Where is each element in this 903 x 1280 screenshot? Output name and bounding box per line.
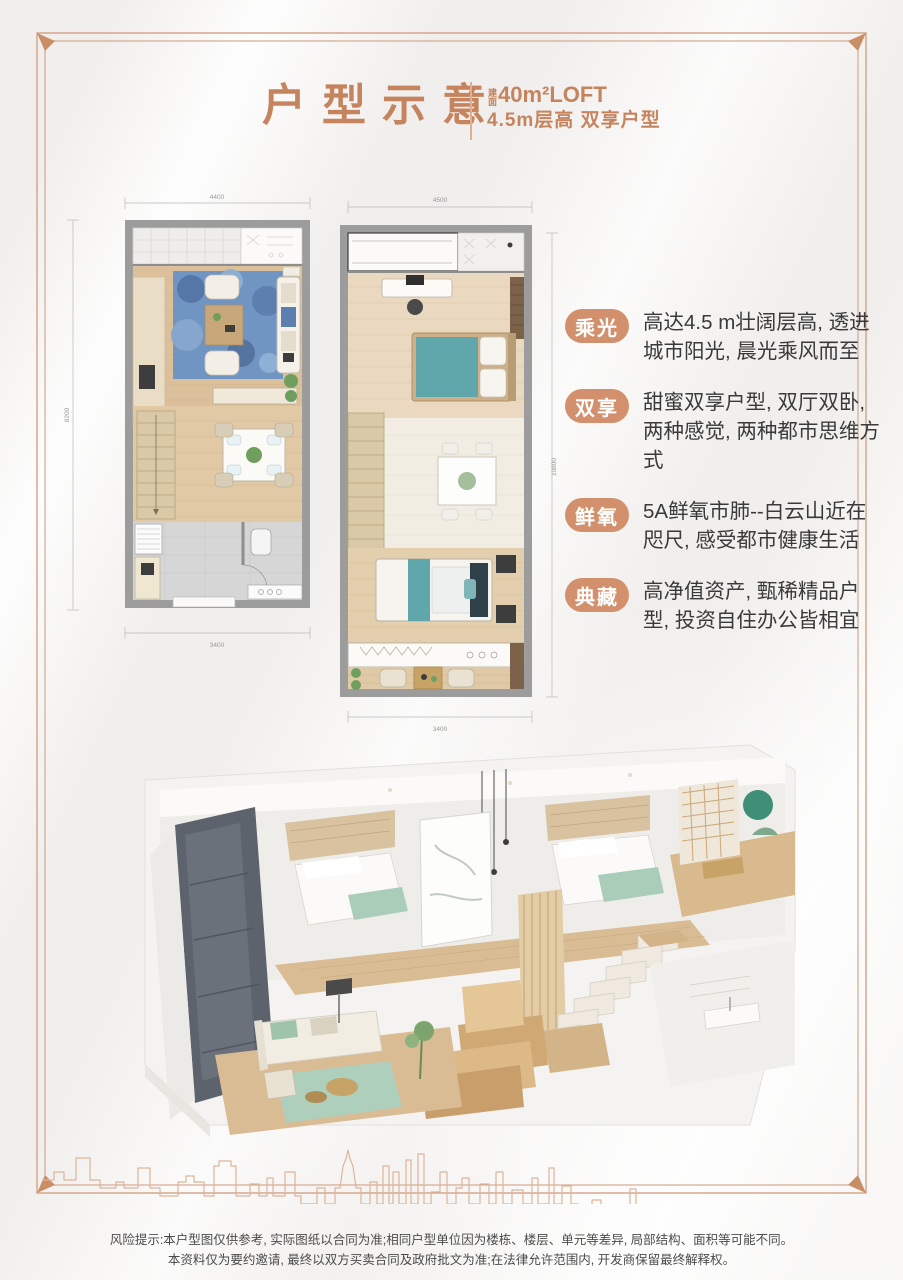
upper-bedroom-2 bbox=[545, 795, 664, 905]
feature-item: 乘光 高达4.5 m壮阔层高, 透进城市阳光, 晨光乘风而至 bbox=[565, 308, 885, 366]
entry-door bbox=[173, 597, 235, 607]
bed bbox=[412, 333, 516, 401]
dining-chair bbox=[215, 473, 233, 487]
subtitle: 建面40m²LOFT 4.5m层高 双享户型 bbox=[487, 82, 661, 134]
feature-badge: 双享 bbox=[565, 389, 629, 423]
bedroom-2 bbox=[348, 548, 524, 643]
tea-table bbox=[414, 667, 442, 689]
dim-right-label: 10800 bbox=[551, 458, 558, 476]
dim-left-label: 8200 bbox=[64, 407, 71, 422]
fan-decor bbox=[743, 790, 773, 820]
armchair bbox=[380, 669, 406, 687]
plant bbox=[351, 668, 361, 678]
floorplan-poster: 户型示意 建面40m²LOFT 4.5m层高 双享户型 4400 8200 34… bbox=[0, 0, 903, 1280]
feature-text: 5A鲜氧市肺--白云山近在咫尺, 感受都市健康生活 bbox=[643, 497, 885, 555]
dining-chair bbox=[215, 423, 233, 437]
feature-text: 甜蜜双享户型, 双厅双卧, 两种感觉, 两种都市思维方式 bbox=[643, 388, 885, 475]
stairs bbox=[137, 411, 175, 519]
void-area bbox=[348, 413, 524, 551]
wardrobe bbox=[510, 277, 524, 339]
disclaimer-line2: 本资料仅为要约邀请, 最终以双方买卖合同及政府批文为准;在法律允许范围内, 开发… bbox=[0, 1250, 903, 1270]
feature-item: 双享 甜蜜双享户型, 双厅双卧, 两种感觉, 两种都市思维方式 bbox=[565, 388, 885, 475]
bed bbox=[376, 559, 492, 621]
subtitle-height: 4.5m层高 双享户型 bbox=[487, 108, 661, 134]
floor-lamp bbox=[326, 978, 352, 996]
header: 户型示意 建面40m²LOFT 4.5m层高 双享户型 bbox=[0, 80, 903, 150]
page-title: 户型示意 bbox=[262, 84, 502, 128]
plant bbox=[284, 374, 298, 388]
dim-top-label: 4400 bbox=[210, 194, 225, 201]
disclaimer-line1: 风险提示:本户型图仅供参考, 实际图纸以合同为准;相同户型单位因为楼栋、楼层、单… bbox=[0, 1230, 903, 1250]
stairs bbox=[348, 413, 384, 551]
city-skyline bbox=[42, 1112, 862, 1204]
kitchen-sink bbox=[139, 365, 155, 389]
nightstand bbox=[496, 605, 516, 623]
feature-text: 高净值资产, 甄稀精品户型, 投资自住办公皆相宜 bbox=[643, 577, 885, 635]
dining-chair bbox=[275, 473, 293, 487]
feature-list: 乘光 高达4.5 m壮阔层高, 透进城市阳光, 晨光乘风而至 双享 甜蜜双享户型… bbox=[565, 308, 885, 657]
wall-art bbox=[420, 812, 492, 947]
dim-bottom-label: 3400 bbox=[210, 642, 225, 649]
closet-row bbox=[348, 643, 524, 667]
desk-chair bbox=[407, 299, 423, 315]
floorplan-upper: 4500 10800 3400 bbox=[320, 185, 570, 735]
feature-item: 典藏 高净值资产, 甄稀精品户型, 投资自住办公皆相宜 bbox=[565, 577, 885, 635]
balcony bbox=[348, 233, 524, 272]
title-divider bbox=[470, 82, 472, 140]
feature-text: 高达4.5 m壮阔层高, 透进城市阳光, 晨光乘风而至 bbox=[643, 308, 885, 366]
bathroom bbox=[133, 522, 302, 607]
dim-top-label: 4500 bbox=[433, 197, 448, 204]
bedroom-1 bbox=[348, 273, 524, 418]
shelf bbox=[510, 643, 524, 689]
feature-badge: 乘光 bbox=[565, 309, 629, 343]
armchair bbox=[448, 669, 474, 687]
dining-chair bbox=[275, 423, 293, 437]
plant bbox=[351, 680, 361, 690]
coffee-table bbox=[205, 305, 243, 345]
subtitle-area-value: 40m²LOFT bbox=[498, 82, 607, 108]
feature-item: 鲜氧 5A鲜氧市肺--白云山近在咫尺, 感受都市健康生活 bbox=[565, 497, 885, 555]
loft-3d-render bbox=[90, 735, 810, 1145]
console-table bbox=[213, 388, 297, 404]
toilet bbox=[251, 529, 271, 555]
feature-badge: 典藏 bbox=[565, 578, 629, 612]
area-prefix: 建面 bbox=[487, 88, 497, 106]
monitor bbox=[406, 275, 424, 285]
kitchen-counter bbox=[133, 277, 165, 427]
dim-bottom-label: 3400 bbox=[433, 726, 448, 733]
dining-area bbox=[133, 406, 302, 522]
balcony bbox=[133, 228, 302, 265]
vanity bbox=[248, 585, 302, 599]
armchair bbox=[205, 275, 239, 299]
feature-badge: 鲜氧 bbox=[565, 498, 629, 532]
armchair bbox=[205, 351, 239, 375]
living-room bbox=[133, 266, 302, 427]
nightstand bbox=[496, 555, 516, 573]
disclaimer: 风险提示:本户型图仅供参考, 实际图纸以合同为准;相同户型单位因为楼栋、楼层、单… bbox=[0, 1230, 903, 1270]
subtitle-area: 建面40m²LOFT bbox=[487, 82, 661, 108]
floorplan-lower: 4400 8200 3400 bbox=[55, 185, 335, 655]
